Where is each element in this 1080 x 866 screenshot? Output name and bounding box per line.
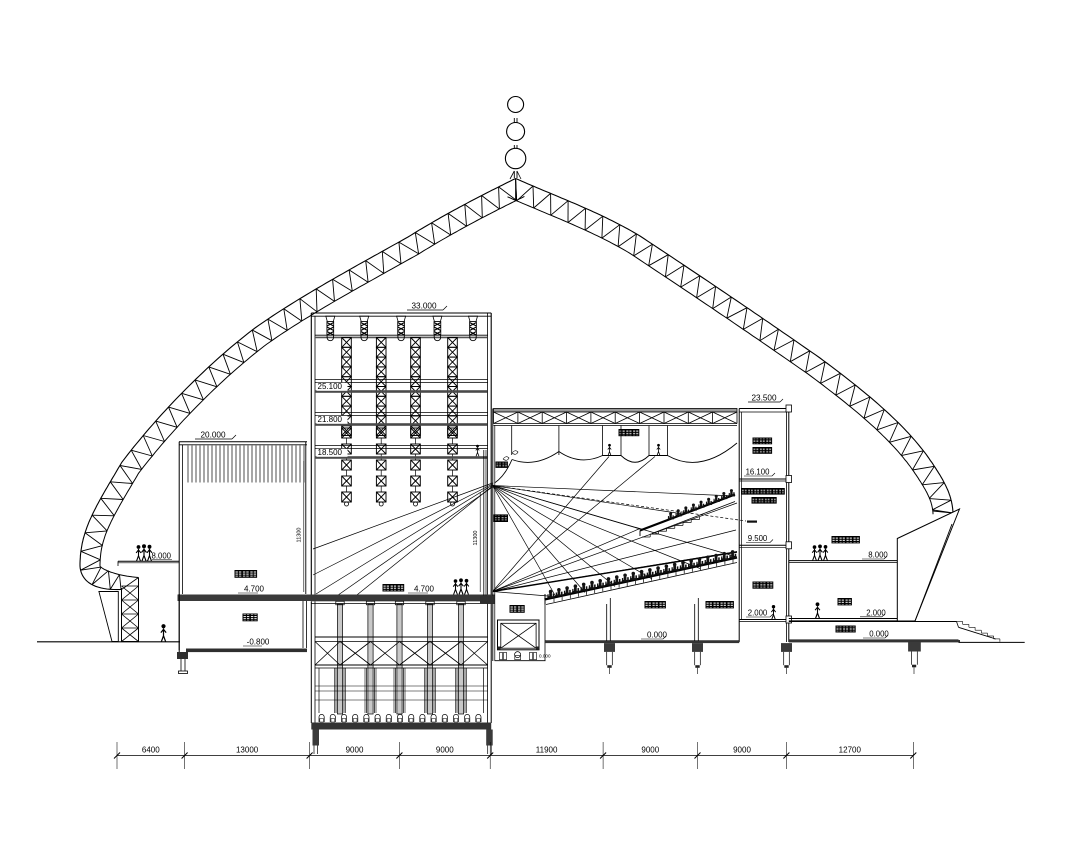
svg-text:20.000: 20.000: [200, 431, 225, 440]
svg-text:23.500: 23.500: [751, 394, 776, 403]
svg-text:12700: 12700: [839, 746, 862, 755]
svg-text:8.000: 8.000: [868, 551, 888, 560]
svg-text:4.700: 4.700: [414, 585, 435, 594]
svg-text:13000: 13000: [236, 746, 259, 755]
svg-text:11300: 11300: [473, 531, 479, 546]
svg-text:4.700: 4.700: [244, 585, 265, 594]
svg-text:6400: 6400: [142, 746, 160, 755]
svg-text:9000: 9000: [641, 746, 659, 755]
svg-text:25.100: 25.100: [318, 382, 343, 391]
svg-text:0.000: 0.000: [869, 630, 889, 639]
svg-text:8.000: 8.000: [151, 552, 171, 561]
svg-text:18.500: 18.500: [318, 448, 343, 457]
svg-text:0.000: 0.000: [647, 631, 668, 640]
svg-text:33.000: 33.000: [411, 302, 436, 311]
svg-text:11300: 11300: [297, 528, 303, 543]
svg-text:-0.800: -0.800: [247, 638, 270, 647]
svg-text:9000: 9000: [733, 746, 751, 755]
svg-text:16.100: 16.100: [746, 468, 771, 477]
svg-text:9.500: 9.500: [748, 534, 768, 543]
svg-text:2.000: 2.000: [866, 608, 886, 617]
svg-text:2.000: 2.000: [748, 609, 768, 618]
svg-text:21.800: 21.800: [318, 415, 343, 424]
svg-text:9000: 9000: [346, 746, 364, 755]
svg-text:11900: 11900: [536, 746, 558, 755]
svg-text:9000: 9000: [436, 746, 454, 755]
